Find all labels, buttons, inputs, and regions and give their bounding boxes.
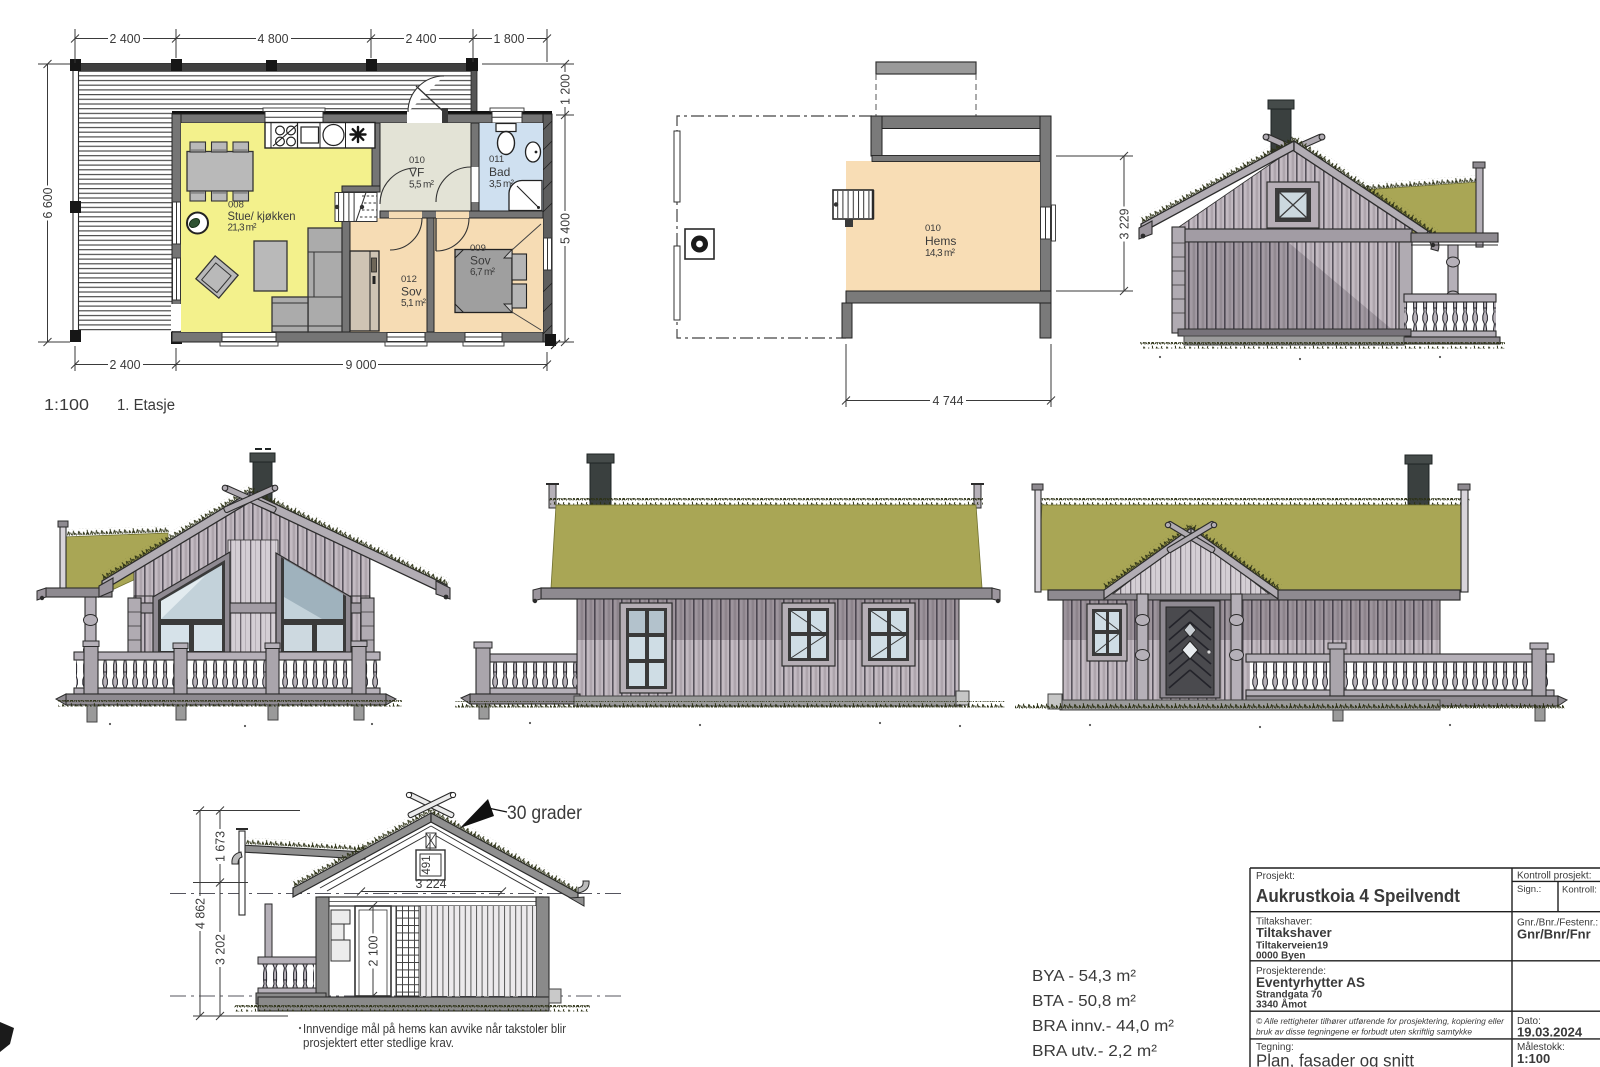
svg-text:4 744: 4 744: [933, 394, 964, 408]
svg-text:21,3 m²: 21,3 m²: [228, 223, 258, 234]
svg-text:5,1 m²: 5,1 m²: [401, 298, 427, 309]
svg-text:4 862: 4 862: [193, 898, 207, 929]
svg-text:Eventyrhytter AS: Eventyrhytter AS: [1256, 975, 1365, 990]
svg-text:009: 009: [470, 243, 486, 254]
svg-text:bruk av disse tegningene er fo: bruk av disse tegningene er forbudt uten…: [1256, 1027, 1472, 1037]
svg-text:1. Etasje: 1. Etasje: [117, 397, 175, 414]
svg-text:Kontroll prosjekt:: Kontroll prosjekt:: [1517, 871, 1591, 882]
svg-text:Prosjekt:: Prosjekt:: [1256, 871, 1295, 882]
svg-text:3340 Åmot: 3340 Åmot: [1256, 998, 1307, 1011]
svg-text:010: 010: [409, 155, 425, 166]
svg-text:14,3 m²: 14,3 m²: [925, 248, 956, 259]
svg-text:Kontroll:: Kontroll:: [1562, 885, 1597, 896]
svg-text:BYA - 54,3 m²: BYA - 54,3 m²: [1032, 968, 1137, 985]
svg-text:010: 010: [925, 223, 941, 234]
svg-text:1:100: 1:100: [44, 397, 89, 414]
svg-text:30 grader: 30 grader: [507, 803, 583, 824]
svg-text:012: 012: [401, 274, 417, 285]
svg-text:Bad: Bad: [489, 165, 510, 179]
svg-text:Gnr/Bnr/Fnr: Gnr/Bnr/Fnr: [1517, 927, 1591, 942]
svg-text:1:100: 1:100: [1517, 1051, 1550, 1066]
svg-text:Sov: Sov: [470, 254, 491, 268]
svg-text:6 600: 6 600: [41, 187, 55, 218]
svg-text:BRA utv.- 2,2 m²: BRA utv.- 2,2 m²: [1032, 1043, 1158, 1060]
svg-text:Stue/ kjøkken: Stue/ kjøkken: [228, 209, 296, 223]
svg-text:Plan, fasader og snitt: Plan, fasader og snitt: [1256, 1051, 1414, 1067]
svg-text:6,7 m²: 6,7 m²: [470, 267, 496, 278]
svg-text:4 800: 4 800: [258, 32, 289, 46]
svg-text:1 673: 1 673: [213, 831, 227, 862]
svg-text:Hems: Hems: [925, 234, 956, 248]
svg-text:Sov: Sov: [401, 285, 422, 299]
svg-text:011: 011: [489, 154, 504, 165]
svg-text:VF: VF: [409, 166, 424, 180]
svg-text:3 224: 3 224: [416, 877, 447, 891]
svg-text:prosjektert etter stedlige kra: prosjektert etter stedlige krav.: [303, 1036, 454, 1050]
svg-text:2 400: 2 400: [406, 32, 437, 46]
svg-text:BTA - 50,8 m²: BTA - 50,8 m²: [1032, 993, 1137, 1010]
svg-text:2 100: 2 100: [366, 935, 380, 966]
svg-text:1 800: 1 800: [494, 32, 525, 46]
svg-text:Innvendige mål på hems kan avv: Innvendige mål på hems kan avvike når ta…: [303, 1022, 566, 1036]
svg-text:2 400: 2 400: [110, 358, 141, 372]
svg-text:© Alle rettigheter tilhører ut: © Alle rettigheter tilhører utførende fo…: [1256, 1016, 1505, 1026]
svg-text:0000 Byen: 0000 Byen: [1256, 951, 1305, 962]
svg-text:9 000: 9 000: [346, 358, 377, 372]
svg-text:491: 491: [421, 855, 433, 874]
svg-text:3 229: 3 229: [1117, 208, 1131, 239]
svg-text:3 202: 3 202: [213, 934, 227, 965]
svg-text:3,5 m²: 3,5 m²: [489, 179, 515, 190]
svg-text:5,5 m²: 5,5 m²: [409, 180, 435, 191]
svg-text:19.03.2024: 19.03.2024: [1517, 1025, 1583, 1040]
svg-text:5 400: 5 400: [558, 213, 572, 244]
svg-text:2 400: 2 400: [110, 32, 141, 46]
svg-text:BRA innv.- 44,0 m²: BRA innv.- 44,0 m²: [1032, 1018, 1175, 1035]
svg-text:Sign.:: Sign.:: [1517, 884, 1541, 895]
svg-text:Tiltakshaver: Tiltakshaver: [1256, 925, 1332, 940]
svg-text:1 200: 1 200: [558, 74, 572, 105]
svg-text:Aukrustkoia 4 Speilvendt: Aukrustkoia 4 Speilvendt: [1256, 886, 1460, 906]
